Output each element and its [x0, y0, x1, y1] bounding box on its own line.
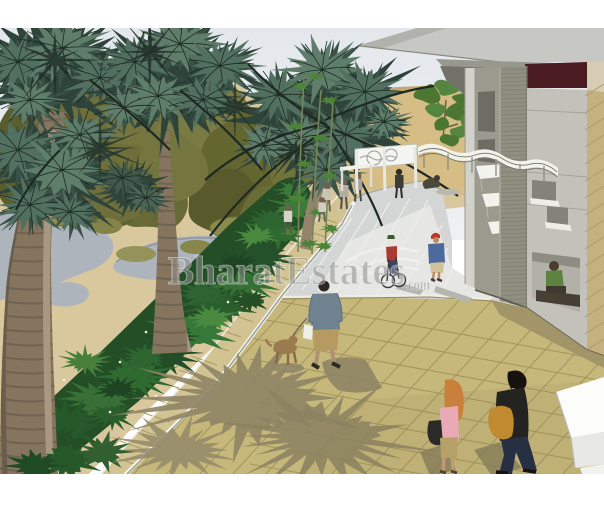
svg-text:BharatEstates: BharatEstates [168, 248, 405, 293]
svg-text:.com: .com [405, 275, 430, 294]
